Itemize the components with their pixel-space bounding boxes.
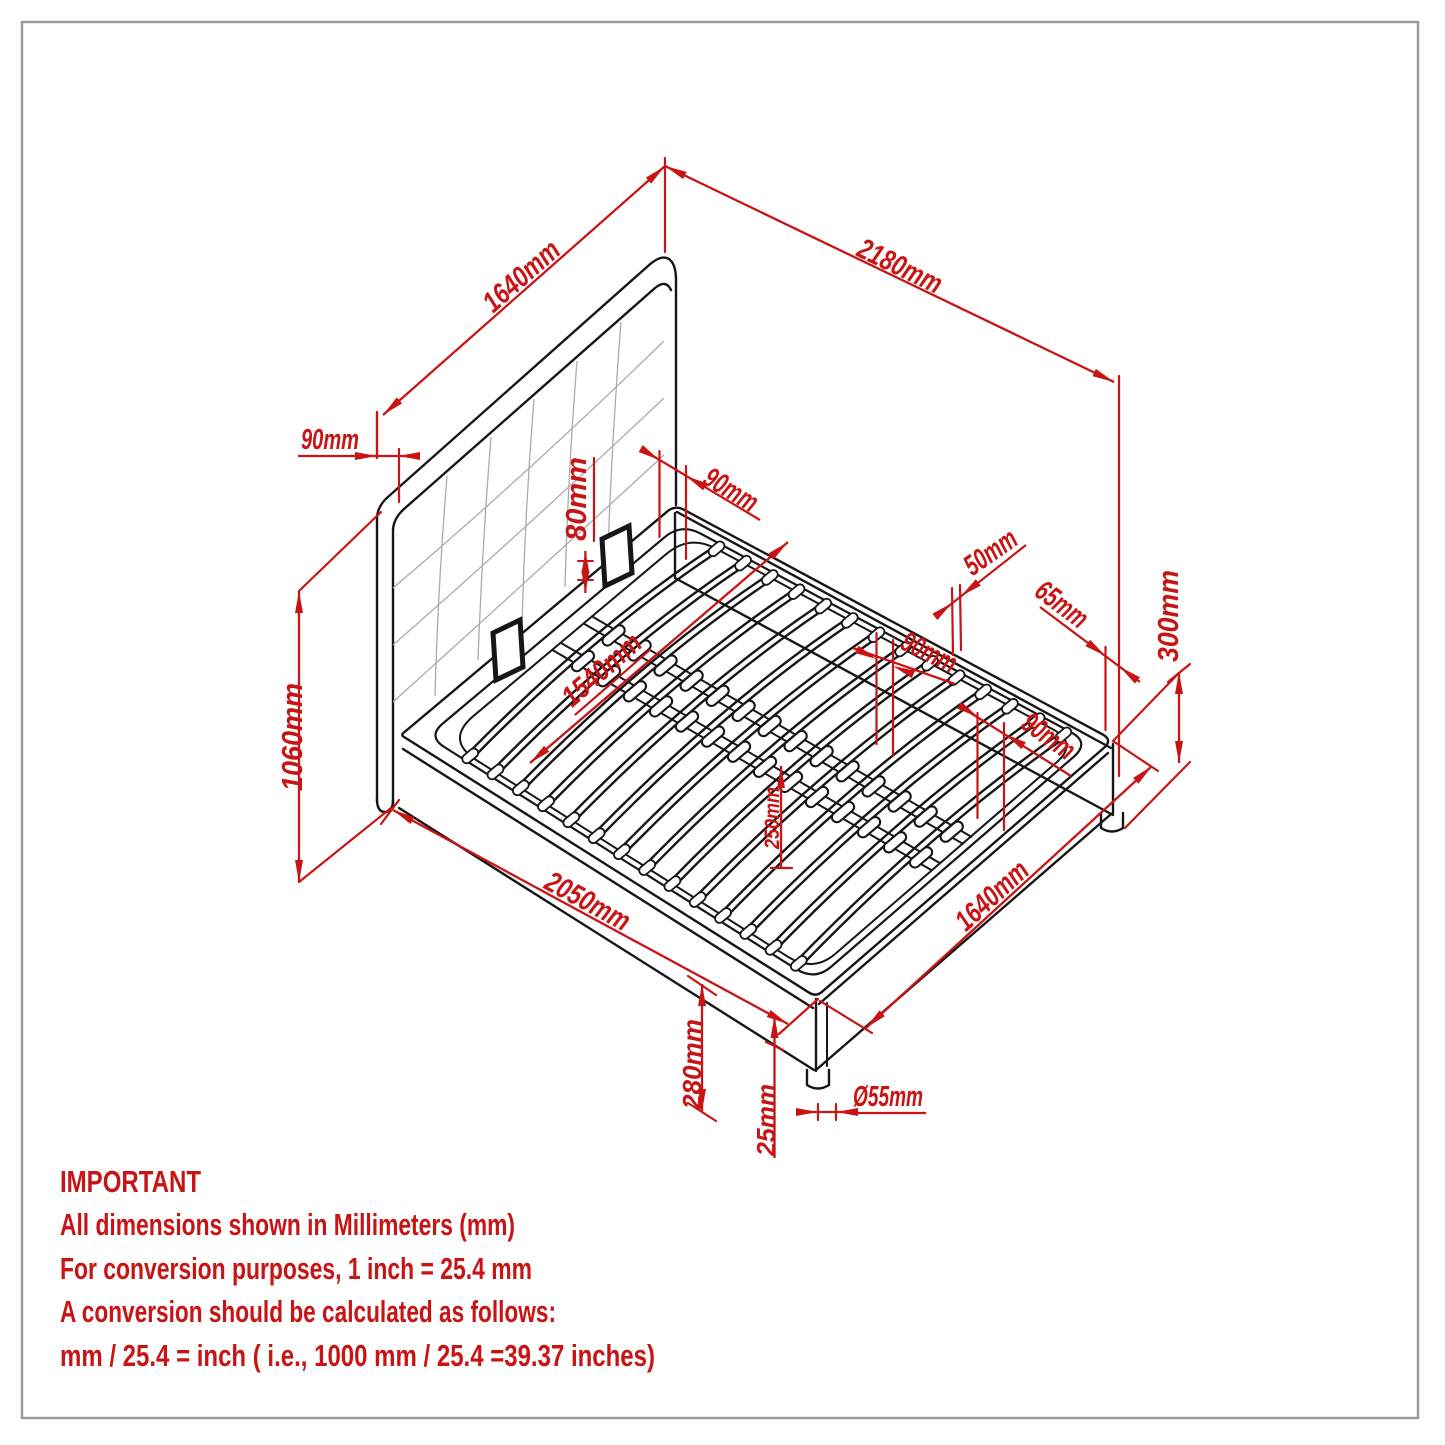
svg-text:mm / 25.4 = inch ( i.e., 1000: mm / 25.4 = inch ( i.e., 1000 mm / 25.4 … [60, 1338, 655, 1373]
svg-text:A conversion should be calcula: A conversion should be calculated as fol… [60, 1294, 556, 1329]
svg-text:For conversion purposes, 1 inc: For conversion purposes, 1 inch = 25.4 m… [60, 1251, 532, 1286]
svg-text:25mm: 25mm [751, 1084, 781, 1157]
svg-text:All dimensions shown in Millim: All dimensions shown in Millimeters (mm) [60, 1207, 515, 1242]
svg-text:90mm: 90mm [301, 424, 359, 456]
svg-text:250mm: 250mm [761, 787, 784, 850]
svg-text:IMPORTANT: IMPORTANT [60, 1164, 201, 1199]
svg-text:80mm: 80mm [561, 457, 593, 541]
svg-text:1060mm: 1060mm [277, 683, 309, 791]
svg-text:300mm: 300mm [1153, 570, 1185, 662]
svg-text:280mm: 280mm [677, 1019, 707, 1110]
svg-text:Ø55mm: Ø55mm [853, 1081, 923, 1113]
